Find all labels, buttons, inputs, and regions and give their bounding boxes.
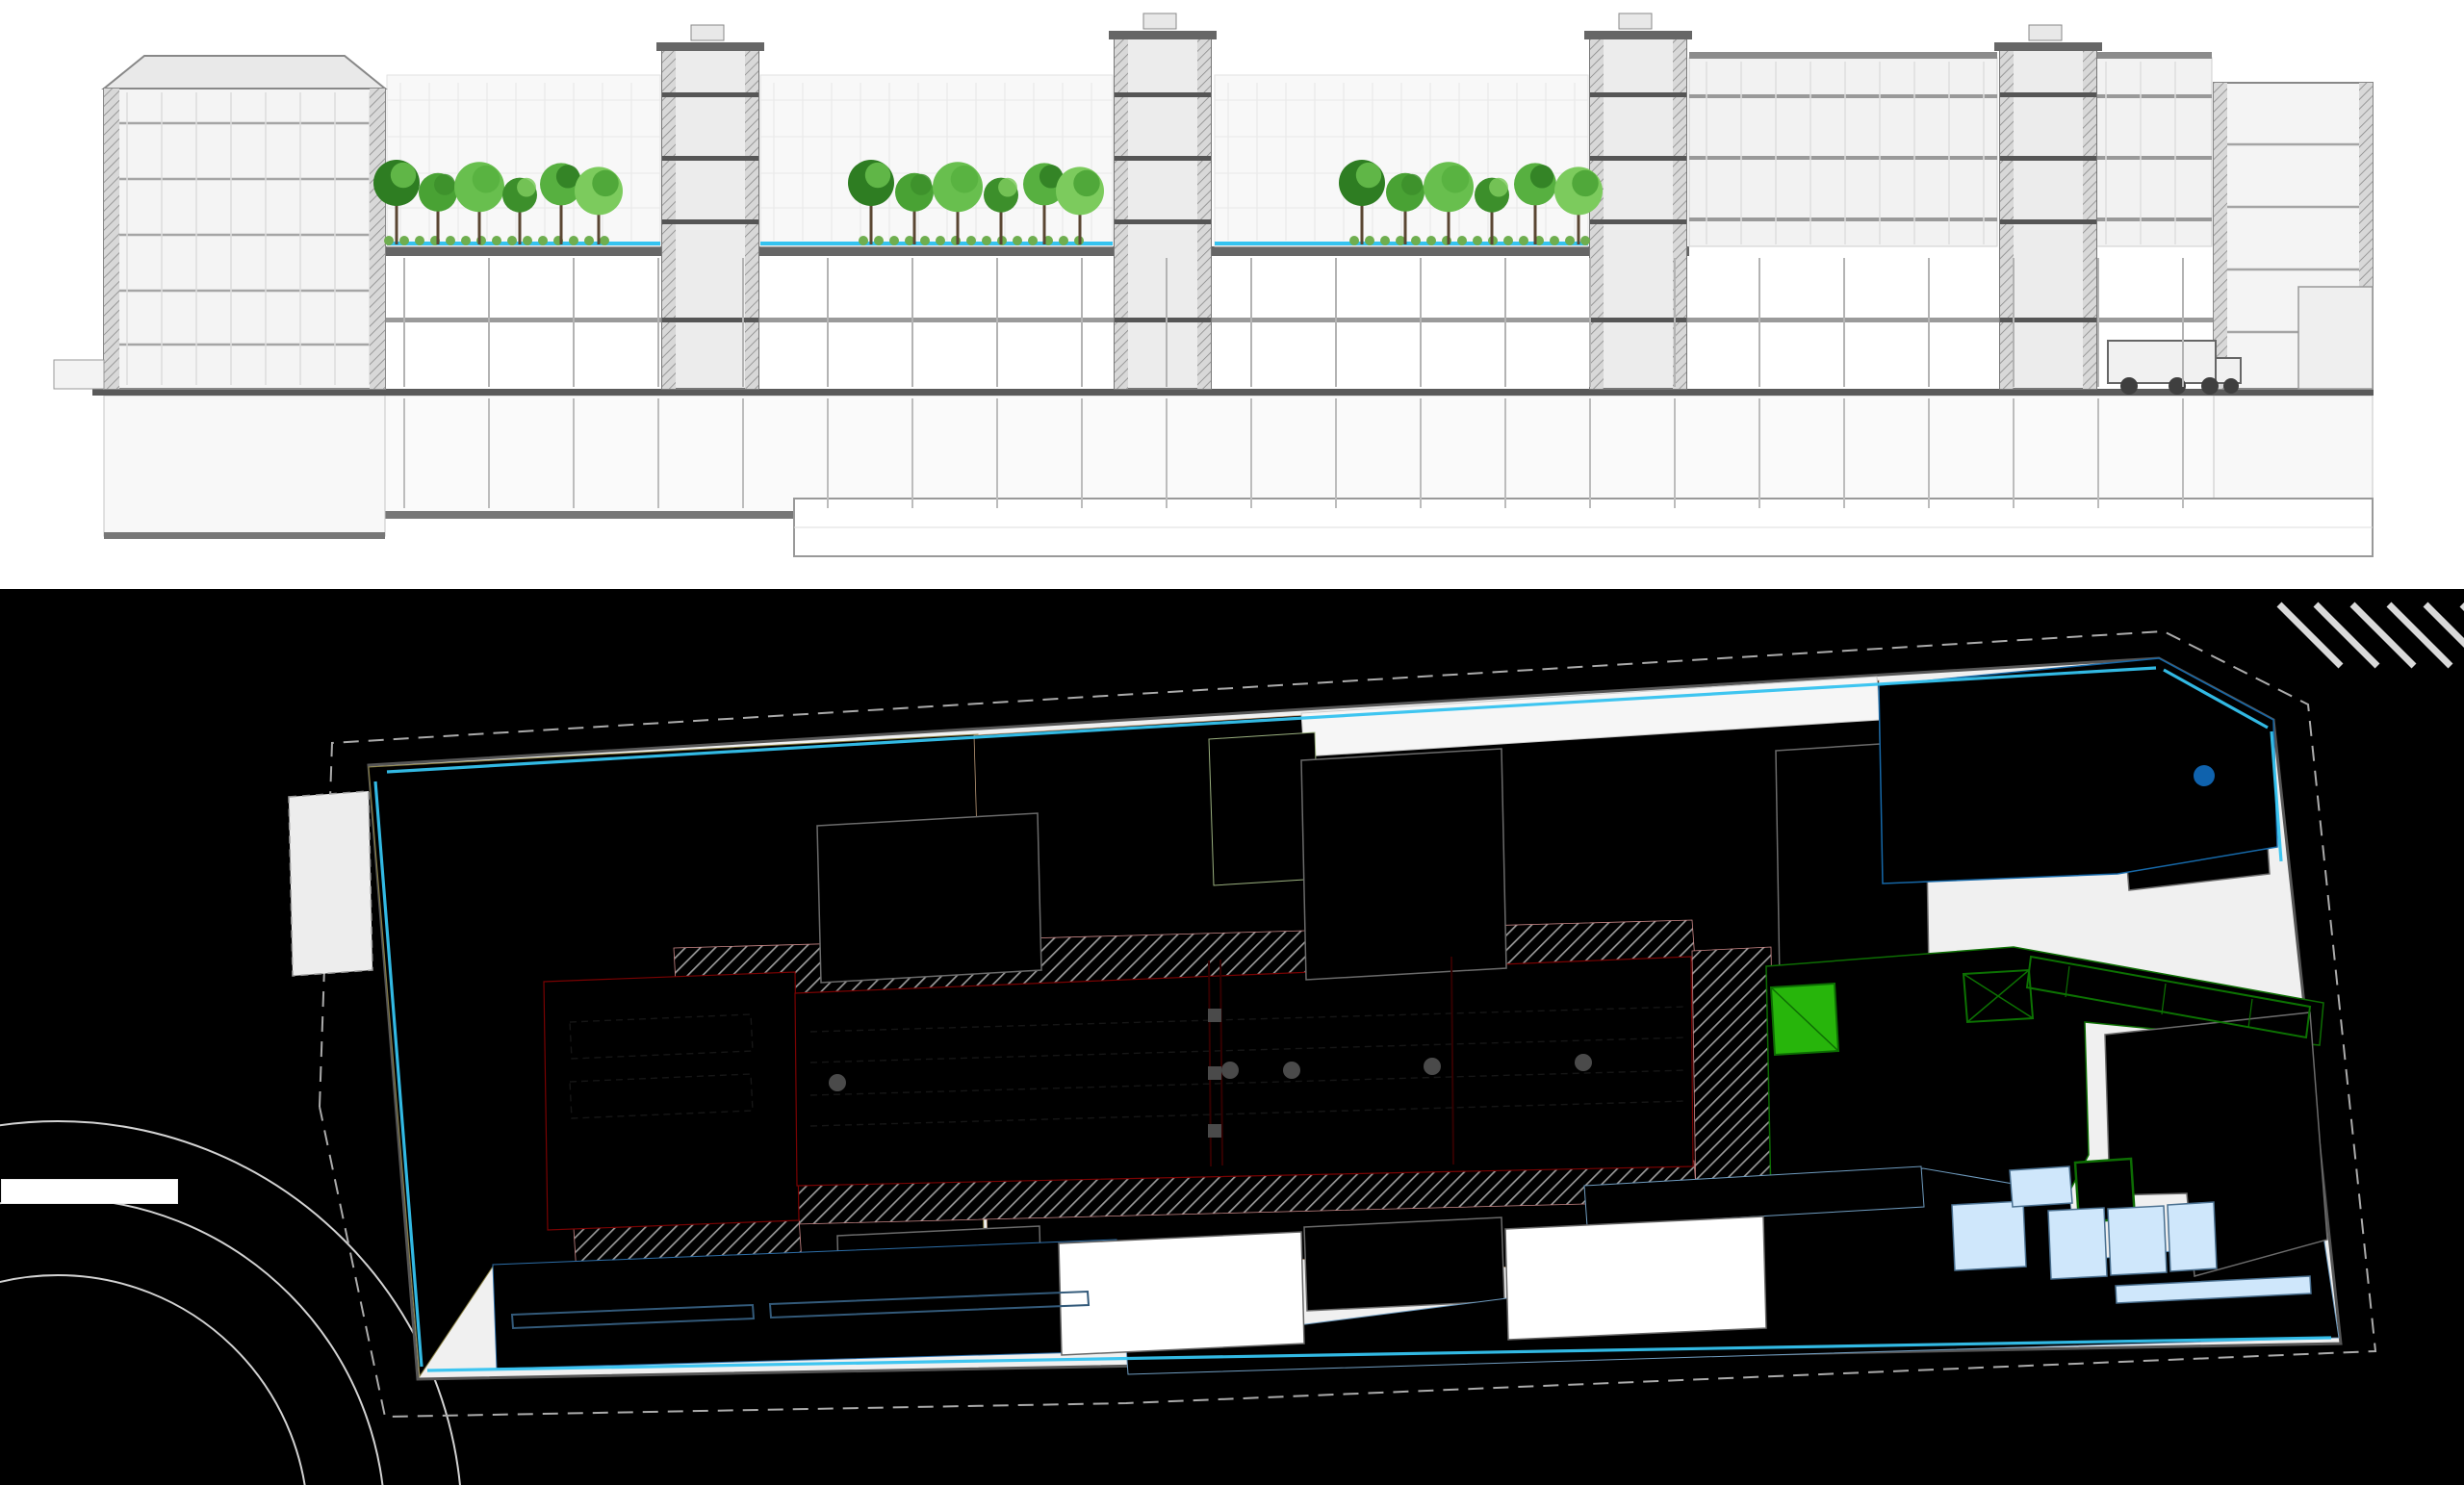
zone-circulation-pont-levis (1692, 947, 1775, 1205)
color-legend (2, 1180, 177, 1203)
zone-auditorium (1879, 658, 2277, 883)
vide-sur-sous-sol-ouest (1059, 1232, 1304, 1355)
ground-floor-plan-drawing (0, 0, 2464, 1485)
public-access-corridor (289, 791, 372, 976)
zone-plateforme-rivoli-st-honore (795, 957, 1693, 1186)
vide-sur-sous-sol-est (1505, 1216, 1766, 1340)
zone-plateforme-palais-royal (544, 972, 799, 1230)
architectural-sheet (0, 0, 2464, 1485)
